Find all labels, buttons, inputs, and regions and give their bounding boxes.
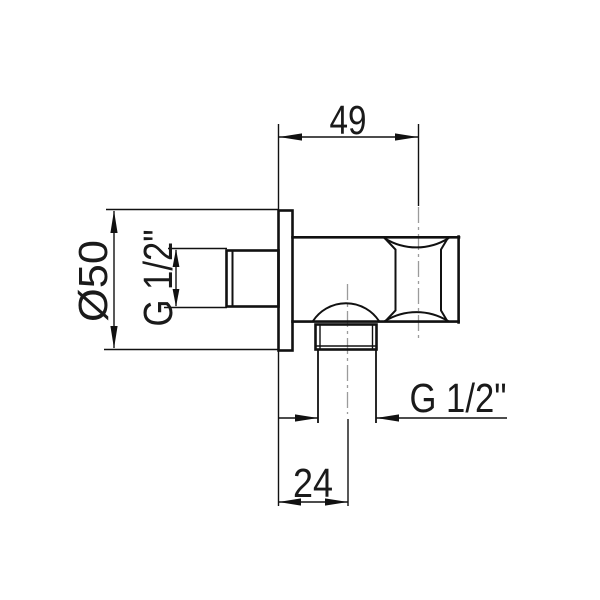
dim-d50-label: Ø50 xyxy=(70,240,116,322)
dim-outlet-left-arrow xyxy=(295,414,318,421)
dim-49-right-arrow xyxy=(395,133,418,140)
dim-d50-top-arrow xyxy=(110,211,117,234)
inlet-nipple xyxy=(227,251,279,307)
dim-outlet-thread-label: G 1/2" xyxy=(410,375,507,421)
holder-top-concave-arc xyxy=(385,239,448,248)
technical-drawing-canvas: 49 Ø50 G 1/2" G 1/2" 24 xyxy=(0,0,600,600)
main-body xyxy=(293,237,460,323)
dim-inlet-thread-label: G 1/2" xyxy=(135,230,181,327)
shower-outlet-drawing: 49 Ø50 G 1/2" G 1/2" 24 xyxy=(0,0,600,600)
outlet-dome-arc xyxy=(313,303,379,321)
dim-49-label: 49 xyxy=(330,97,367,143)
dim-24-label: 24 xyxy=(293,460,333,506)
wall-plate xyxy=(279,211,293,351)
inlet-nipple-body xyxy=(227,251,279,307)
holder-right-inner-edge xyxy=(441,240,447,321)
holder-left-inner-edge xyxy=(386,240,396,321)
holder-bottom-concave-arc xyxy=(385,312,448,321)
dim-outlet-right-arrow xyxy=(376,414,399,421)
handset-holder xyxy=(385,239,448,322)
dim-d50-bottom-arrow xyxy=(110,326,117,349)
dim-49-left-arrow xyxy=(279,133,302,140)
